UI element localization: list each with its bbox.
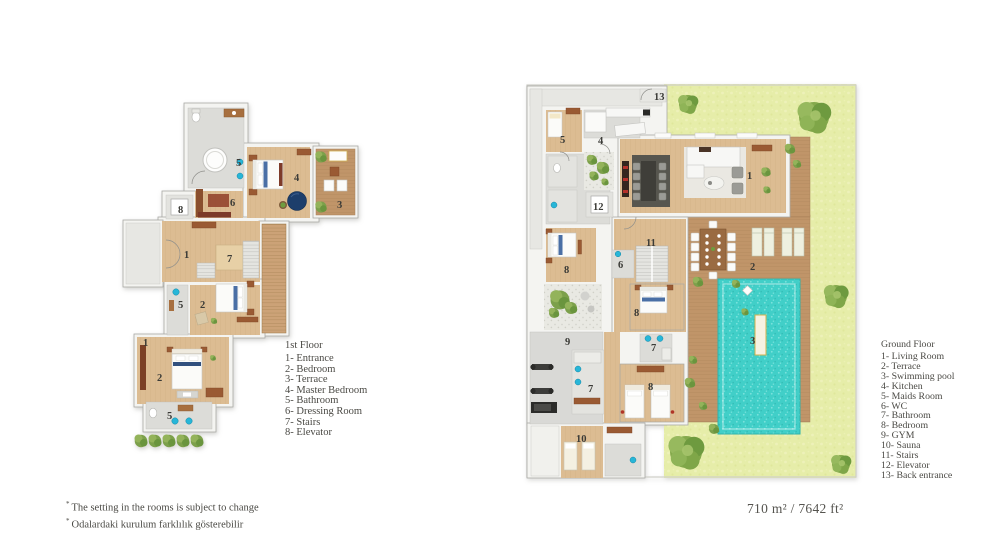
swimming-pool [718,279,800,434]
room-number-label: 7 [651,343,656,354]
room-number-label: 4 [294,173,300,184]
room-number-label: 5 [560,135,565,146]
room-number-label: 5 [167,411,172,422]
ground-floor-legend-title: Ground Floor [881,339,954,350]
legend-item: 6- Dressing Room [285,407,367,418]
floor-plan-page: { "colors": { "grass": "#e6eda9", "pool"… [0,0,996,558]
room-number-label: 5 [236,158,241,169]
first-floor-garden-bushes [135,435,204,448]
room-number-label: 5 [178,300,183,311]
room-number-label: 8 [178,205,183,216]
room-number-label: 6 [618,260,623,271]
room-number-label: 8 [648,382,653,393]
room-number-label: 2 [157,373,162,384]
ground-floor-plan: 13541211168283978710 [520,60,870,490]
room-number-label: 6 [230,198,235,209]
total-area-label: 710 m² / 7642 ft² [747,501,843,517]
room-number-label: 11 [646,238,656,249]
room-number-label: 7 [588,384,593,395]
room-number-label: 1 [184,250,189,261]
first-floor-legend-title: 1st Floor [285,340,367,351]
legend-item: 1- Entrance [285,354,367,365]
room-number-label: 3 [337,200,342,211]
room-number-label: 4 [598,136,604,147]
ground-floor-legend: Ground Floor 1- Living Room2- Terrace3- … [881,339,954,481]
legend-item: 8- Elevator [285,428,367,439]
first-floor-legend: 1st Floor 1- Entrance2- Bedroom3- Terrac… [285,340,367,439]
footnote-turkish: *Odalardaki kurulum farklılık gösterebil… [66,515,259,532]
room-number-label: 10 [576,434,587,445]
room-number-label: 2 [750,262,755,273]
legend-item: 13- Back entrance [881,471,954,481]
room-number-label: 2 [200,300,205,311]
footnote-english: *The setting in the rooms is subject to … [66,498,259,515]
room-number-label: 12 [593,202,604,213]
footnote-marker: * [66,517,70,525]
room-number-label: 1 [143,338,148,349]
room-number-label: 1 [747,171,752,182]
room-number-label: 8 [634,308,639,319]
footnote-marker: * [66,500,70,508]
footnotes: *The setting in the rooms is subject to … [66,498,259,532]
room-number-label: 13 [654,92,665,103]
room-number-label: 7 [227,254,232,265]
room-number-label: 8 [564,265,569,276]
room-number-label: 9 [565,337,570,348]
room-number-label: 3 [750,336,755,347]
